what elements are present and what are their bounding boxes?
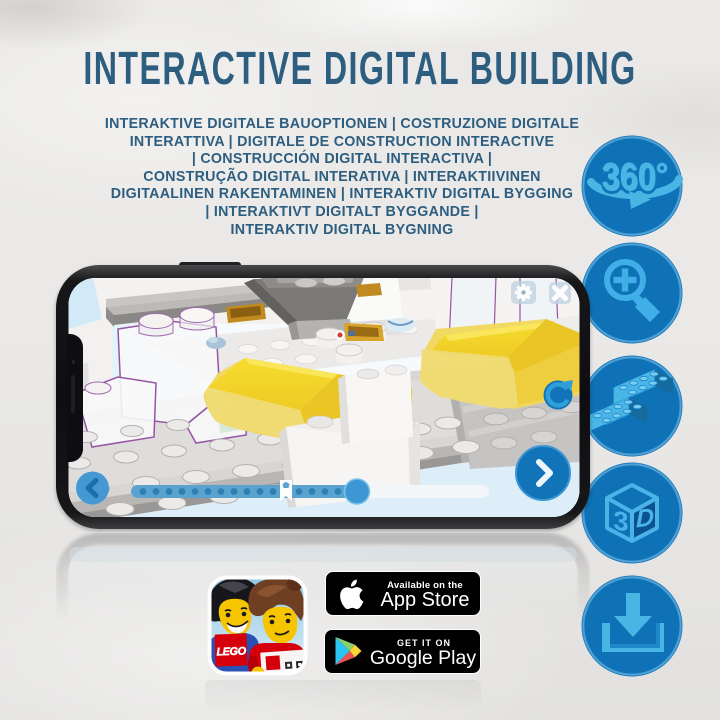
svg-text:3: 3 — [613, 505, 628, 538]
svg-text:360: 360 — [602, 156, 656, 198]
svg-text:LEGO: LEGO — [216, 645, 247, 658]
svg-text:D: D — [636, 503, 654, 533]
